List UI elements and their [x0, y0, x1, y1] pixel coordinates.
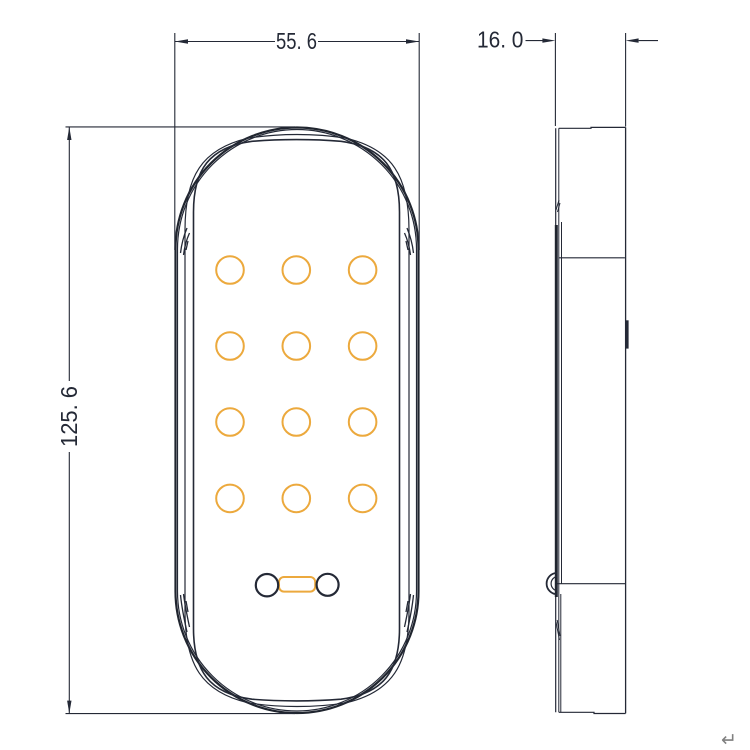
- svg-text:16. 0: 16. 0: [477, 27, 524, 53]
- svg-text:125. 6: 125. 6: [56, 386, 82, 447]
- svg-text:↵: ↵: [721, 730, 737, 750]
- svg-text:55. 6: 55. 6: [276, 28, 317, 54]
